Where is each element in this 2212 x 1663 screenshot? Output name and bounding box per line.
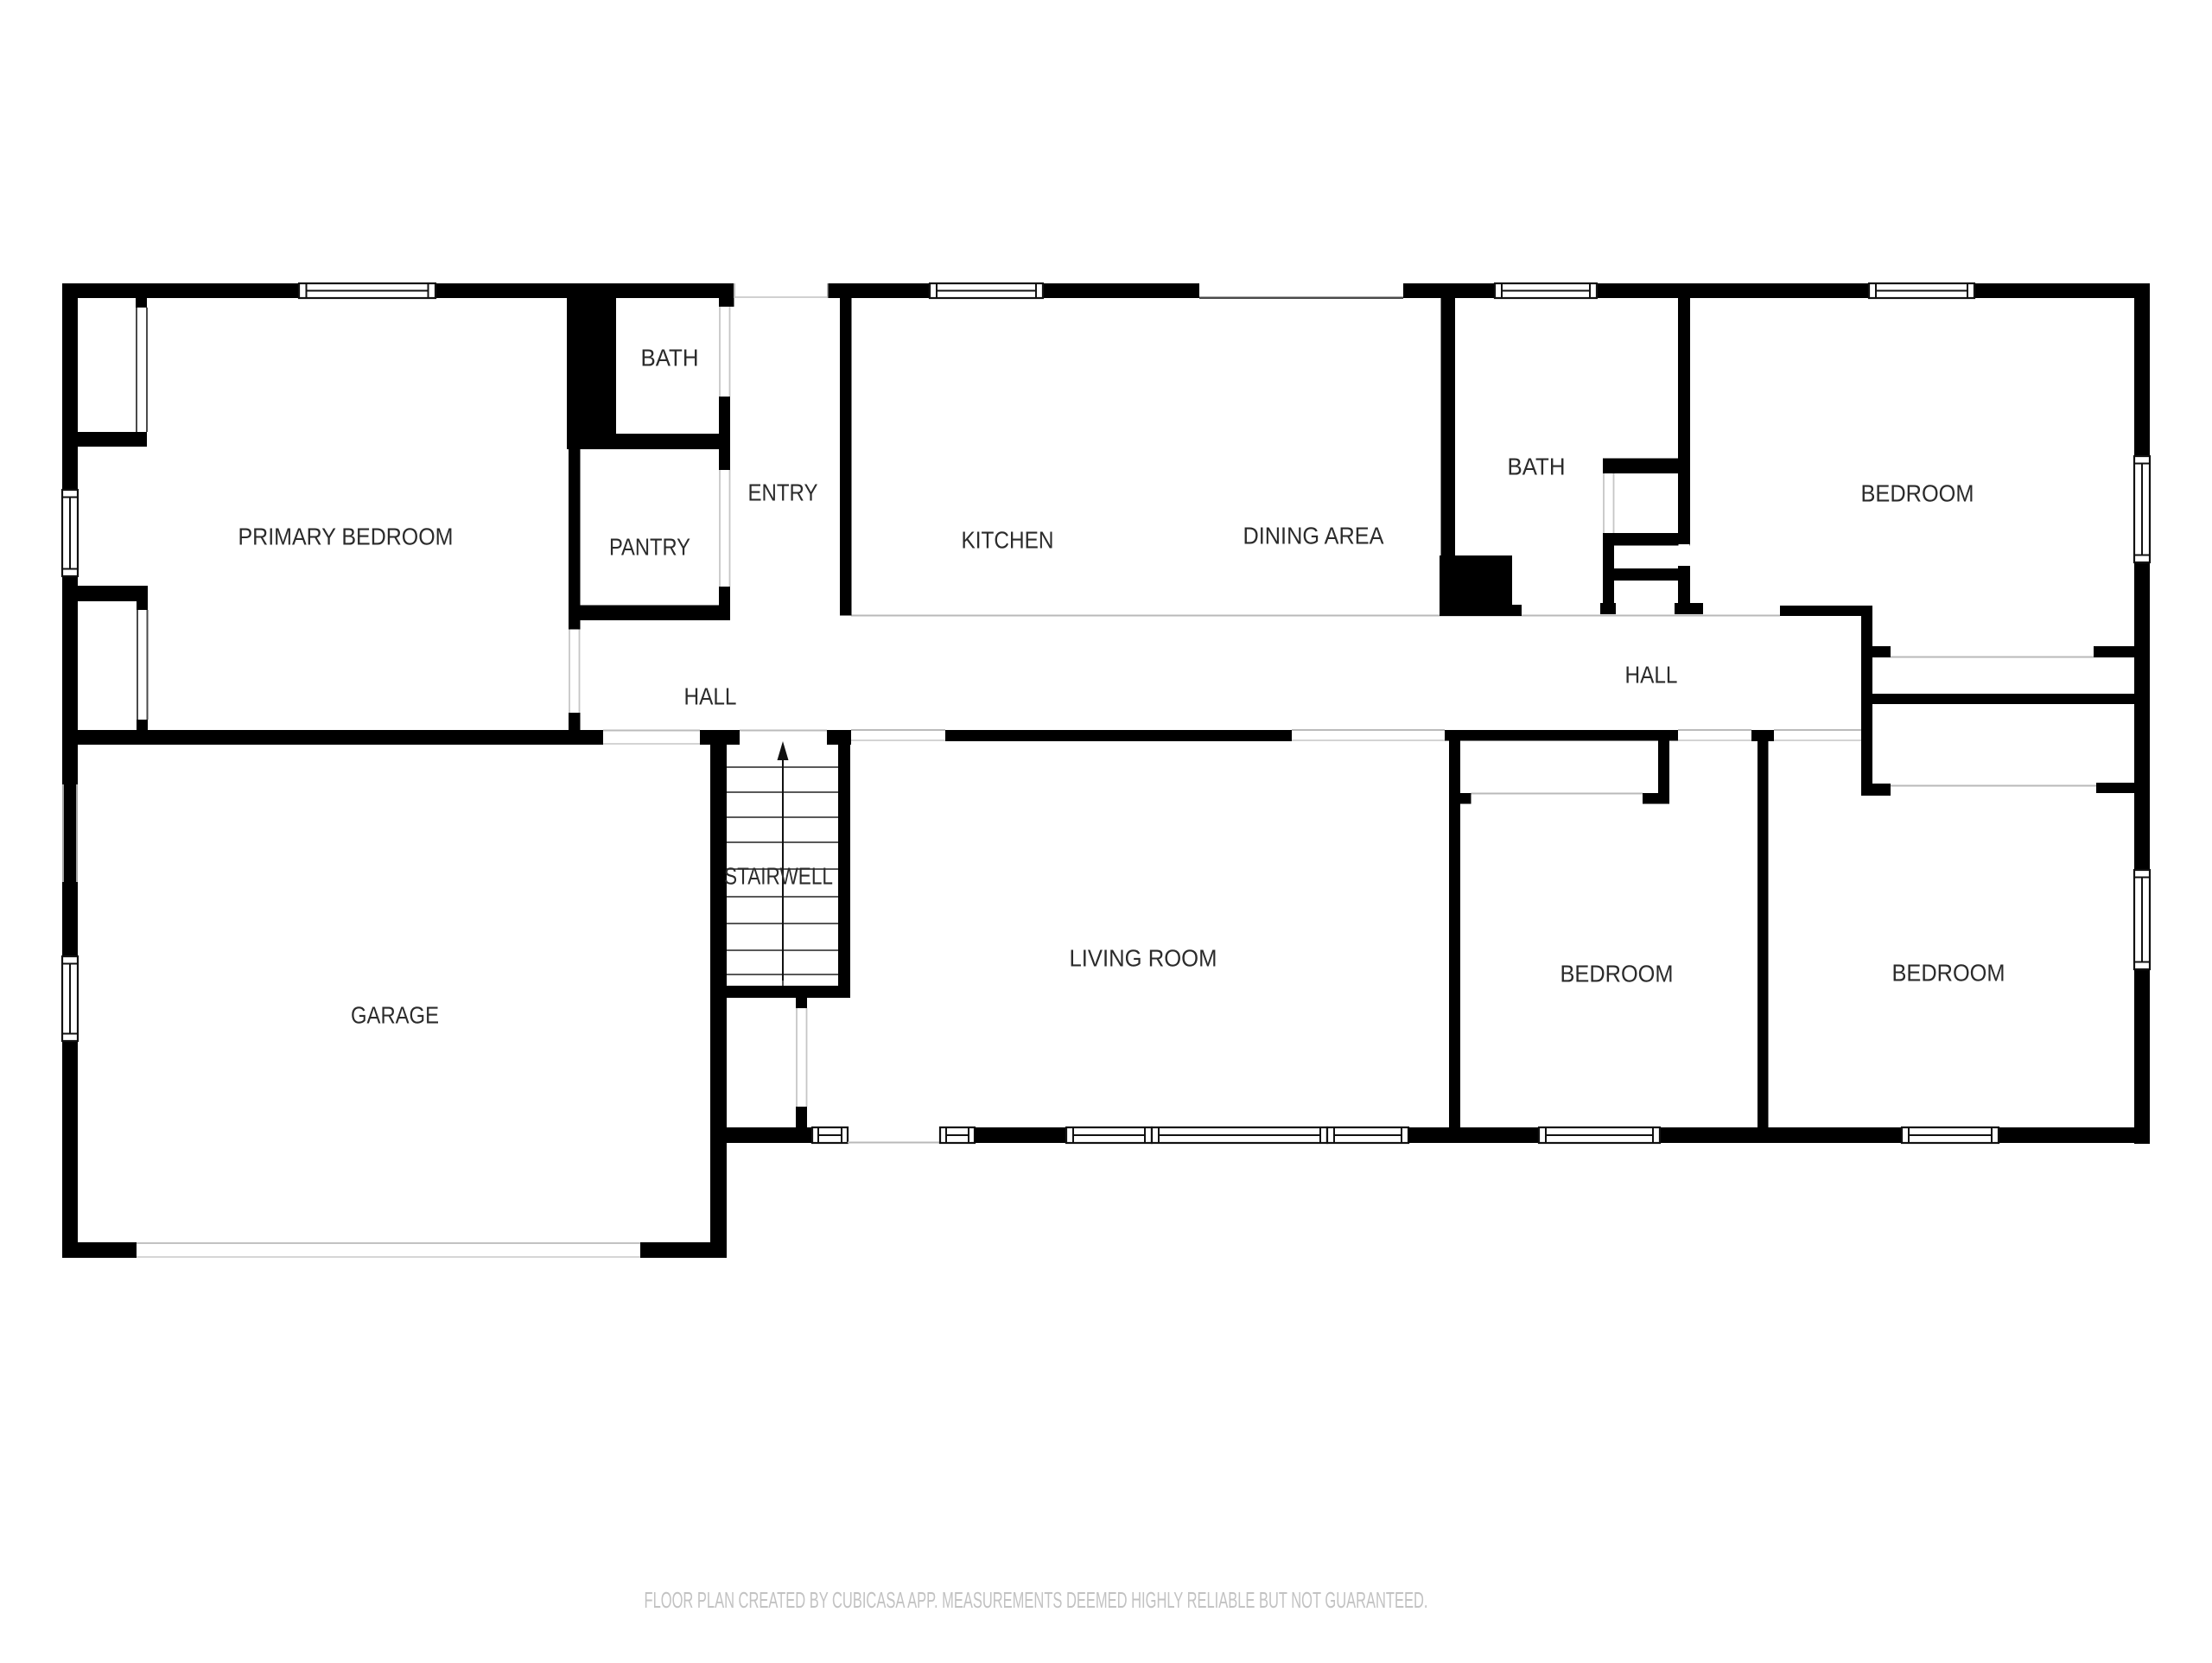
svg-text:BATH: BATH — [1508, 454, 1566, 480]
svg-text:DINING AREA: DINING AREA — [1243, 523, 1385, 549]
svg-text:BEDROOM: BEDROOM — [1861, 480, 1974, 507]
svg-text:LIVING ROOM: LIVING ROOM — [1070, 945, 1217, 972]
svg-text:PRIMARY BEDROOM: PRIMARY BEDROOM — [238, 524, 454, 550]
svg-text:BATH: BATH — [641, 345, 699, 371]
svg-text:PANTRY: PANTRY — [609, 534, 690, 561]
svg-text:HALL: HALL — [684, 683, 737, 710]
svg-text:FLOOR PLAN CREATED BY CUBICASA: FLOOR PLAN CREATED BY CUBICASA APP. MEAS… — [645, 1587, 1428, 1613]
svg-text:KITCHEN: KITCHEN — [962, 527, 1054, 554]
svg-text:STAIRWELL: STAIRWELL — [724, 863, 833, 890]
svg-text:ENTRY: ENTRY — [748, 479, 818, 506]
svg-text:BEDROOM: BEDROOM — [1560, 961, 1674, 987]
svg-text:GARAGE: GARAGE — [351, 1002, 439, 1029]
svg-text:HALL: HALL — [1625, 662, 1678, 689]
svg-text:BEDROOM: BEDROOM — [1892, 960, 2005, 987]
